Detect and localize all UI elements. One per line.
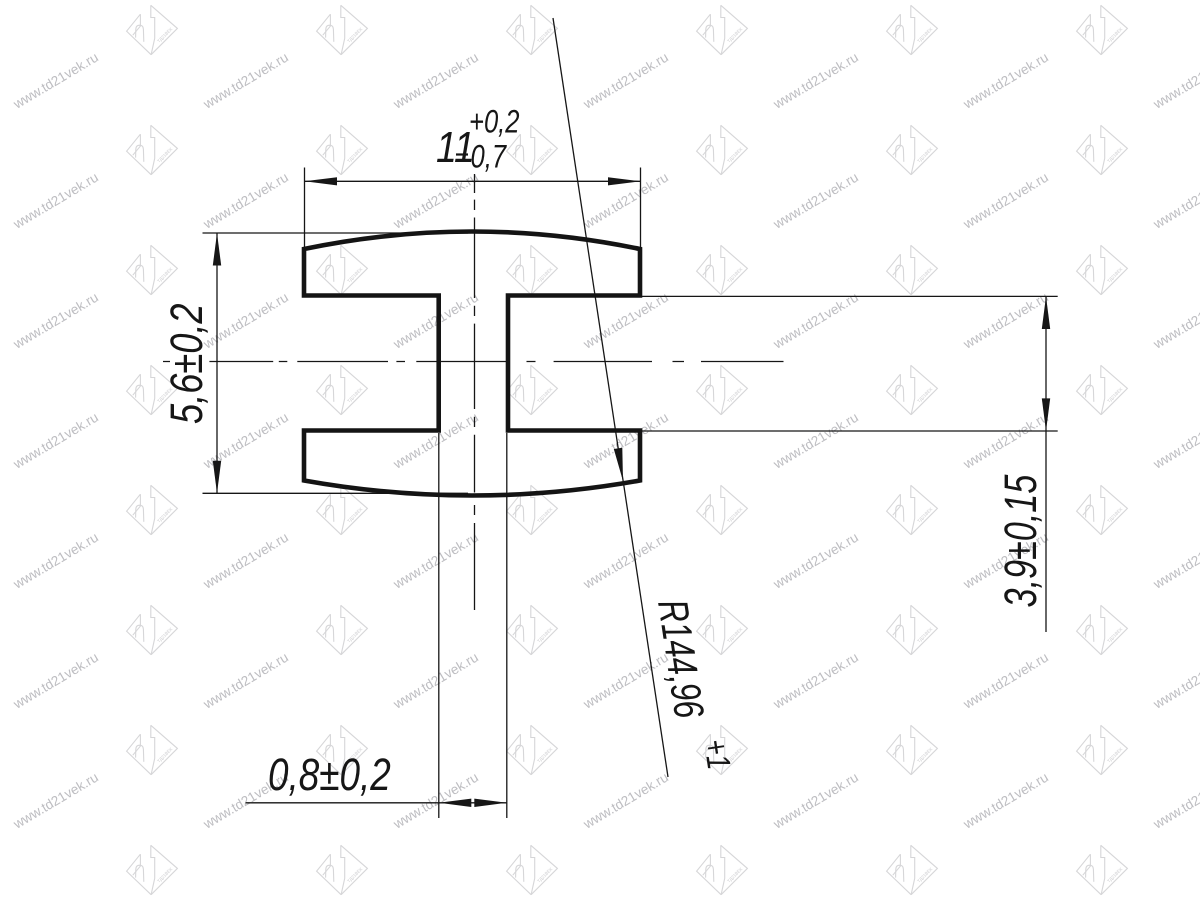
- svg-text:3,9±0,15: 3,9±0,15: [997, 474, 1047, 607]
- svg-text:5,6±0,2: 5,6±0,2: [161, 303, 212, 424]
- svg-text:0,8±0,2: 0,8±0,2: [268, 750, 391, 800]
- svg-text:+0,2: +0,2: [469, 105, 520, 140]
- svg-text:0,7: 0,7: [471, 140, 507, 175]
- svg-text:+1: +1: [696, 737, 736, 772]
